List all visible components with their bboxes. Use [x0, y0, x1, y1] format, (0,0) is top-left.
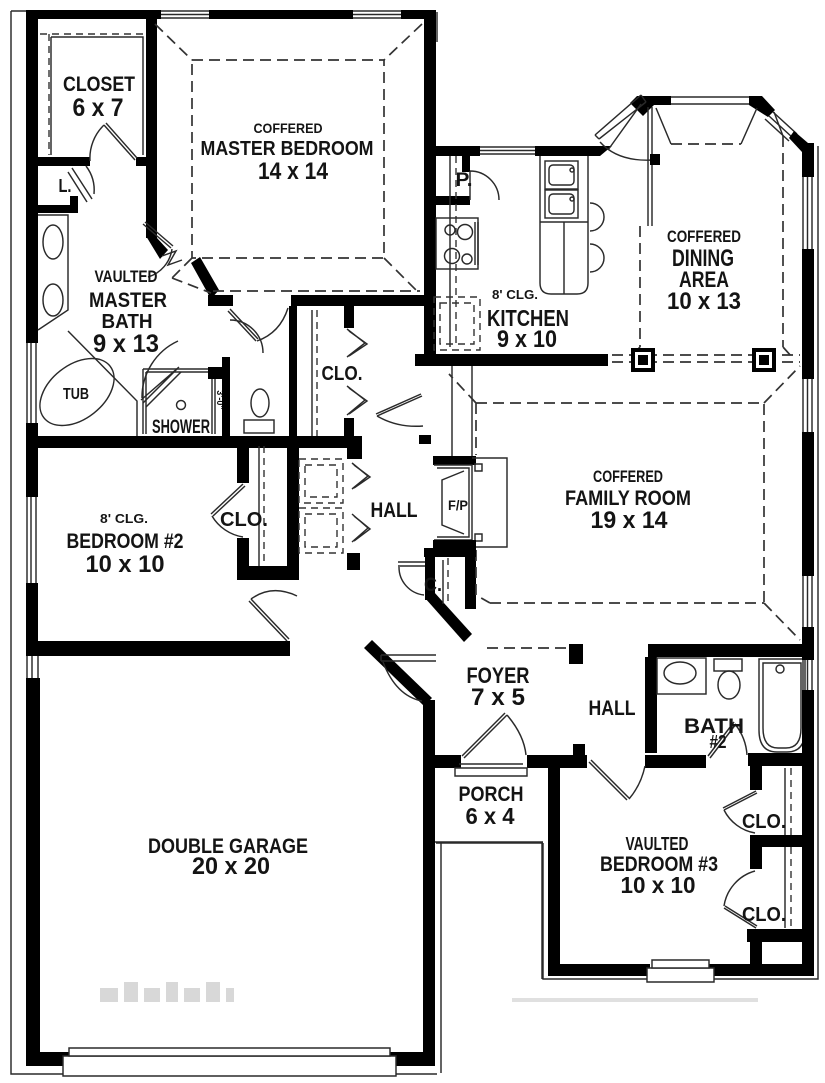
svg-text:COFFERED: COFFERED: [667, 227, 741, 246]
svg-text:8' CLG.: 8' CLG.: [492, 287, 538, 302]
svg-text:CLO.: CLO.: [742, 904, 786, 926]
svg-text:MASTER: MASTER: [89, 289, 167, 312]
svg-text:MASTER BEDROOM: MASTER BEDROOM: [201, 138, 374, 160]
svg-text:CLO.: CLO.: [220, 509, 268, 531]
svg-text:F/P: F/P: [448, 497, 468, 513]
svg-text:#2: #2: [710, 732, 727, 752]
svg-text:CLOSET: CLOSET: [63, 73, 135, 96]
svg-text:P.: P.: [456, 170, 473, 191]
svg-text:CLO.: CLO.: [322, 363, 363, 385]
svg-text:C.: C.: [424, 575, 442, 596]
svg-text:9 x 10: 9 x 10: [497, 326, 557, 353]
svg-text:8' CLG.: 8' CLG.: [100, 511, 148, 526]
svg-text:BEDROOM #2: BEDROOM #2: [67, 530, 184, 553]
svg-text:10 x 10: 10 x 10: [86, 551, 165, 578]
svg-text:VAULTED: VAULTED: [95, 267, 158, 286]
svg-text:COFFERED: COFFERED: [593, 467, 663, 486]
svg-text:20 x 20: 20 x 20: [192, 853, 270, 880]
svg-text:19 x 14: 19 x 14: [591, 507, 669, 534]
svg-text:6 x 7: 6 x 7: [73, 94, 124, 122]
svg-text:COFFERED: COFFERED: [254, 120, 323, 136]
svg-text:CLO.: CLO.: [742, 811, 786, 833]
svg-text:L.: L.: [59, 176, 72, 196]
svg-text:14 x 14: 14 x 14: [258, 158, 329, 185]
svg-text:7 x 5: 7 x 5: [471, 684, 525, 711]
svg-text:10 x 13: 10 x 13: [667, 288, 741, 315]
svg-text:10 x 10: 10 x 10: [621, 872, 696, 898]
svg-text:HALL: HALL: [589, 697, 636, 720]
svg-text:SHOWER: SHOWER: [152, 417, 210, 438]
svg-text:9 x 13: 9 x 13: [93, 330, 159, 358]
svg-text:TUB: TUB: [63, 386, 89, 403]
svg-text:HALL: HALL: [371, 499, 418, 522]
svg-text:6 x 4: 6 x 4: [466, 803, 515, 829]
svg-text:VAULTED: VAULTED: [626, 834, 689, 854]
